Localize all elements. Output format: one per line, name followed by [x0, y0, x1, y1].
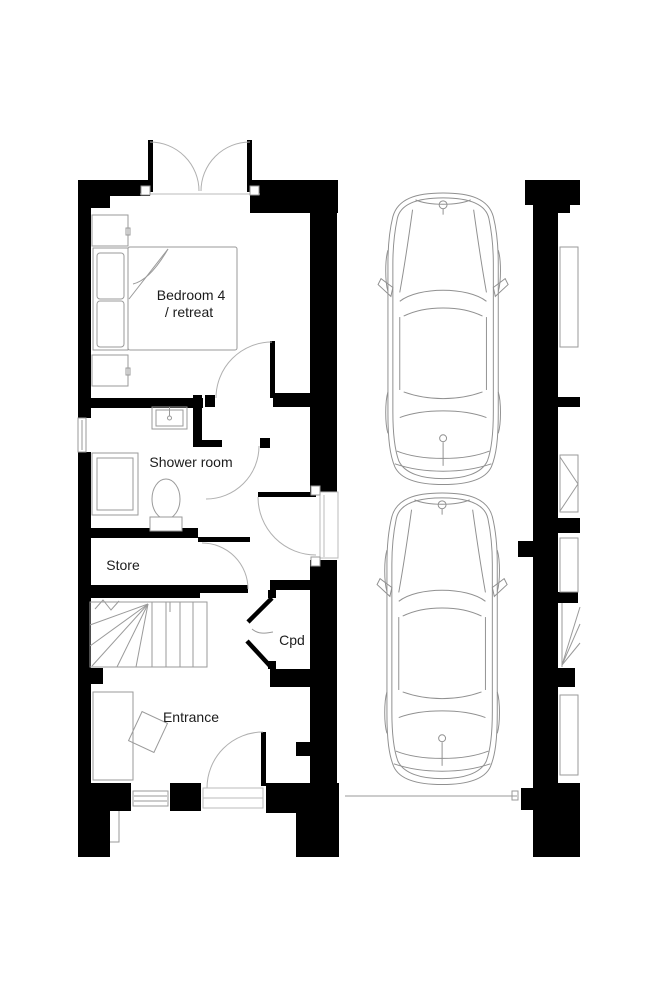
nightstand-top: [92, 215, 128, 246]
neighbor-wall-column: [533, 205, 558, 783]
shower-tray: [92, 453, 138, 515]
cpd-leader-line: [252, 629, 273, 633]
wall-sink-partition: [193, 395, 202, 445]
cpd-label: Cpd: [279, 632, 305, 648]
entrance-door-leaf: [261, 732, 266, 786]
french-door-jamb-left: [141, 186, 150, 195]
neighbor-window-box-3: [560, 695, 578, 775]
wall-left-upper: [78, 196, 91, 418]
french-door-jamb-right: [250, 186, 259, 195]
bed-fold-curve: [133, 249, 168, 284]
neighbor-stairs: [562, 603, 580, 667]
store-label: Store: [106, 557, 140, 573]
wall-right-stub: [296, 742, 311, 756]
sink-tap-head: [168, 416, 172, 420]
car-2: [377, 493, 507, 785]
shower-door-post: [260, 438, 270, 448]
bifold-leaf-upper: [248, 598, 272, 622]
main-unit-walls: [78, 180, 339, 857]
store-door-arc: [202, 543, 248, 589]
wall-store-bottom: [78, 585, 200, 598]
wall-left-lower: [78, 452, 91, 783]
entrance-door-arc: [207, 732, 263, 788]
wall-shower-stub: [193, 440, 222, 447]
cpd-top-stub: [270, 580, 312, 590]
bedroom-door-leaf: [270, 341, 275, 398]
shower-room-label: Shower room: [149, 454, 232, 470]
wall-top-left-notch: [91, 196, 110, 208]
wall-hall-low: [198, 537, 250, 542]
french-door-left-arc: [150, 142, 199, 191]
neighbor-window-box-1: [560, 247, 578, 347]
neighbor-unit: [518, 180, 580, 857]
wall-right-lower: [310, 560, 337, 783]
bedroom-door-jamb: [205, 395, 215, 407]
neighbor-top-cap: [525, 180, 580, 205]
porch-left-pier: [78, 811, 110, 857]
chair: [129, 712, 168, 753]
front-door-jamb-top: [311, 486, 320, 495]
wall-bottom-right: [266, 783, 339, 813]
porch-step-lines: [110, 811, 119, 842]
porch-window: [133, 791, 168, 806]
porch-right-pier: [296, 813, 339, 857]
neighbor-step: [558, 205, 570, 213]
wall-bottom-center-pier: [170, 783, 201, 811]
wall-bedroom-door-head: [273, 393, 310, 407]
toilet-bowl: [152, 479, 180, 519]
neighbor-bottom-block: [533, 783, 580, 857]
cupboard-bifold-doors: [247, 598, 273, 667]
shower-tray-inner: [97, 458, 133, 510]
front-door-leaf: [258, 492, 316, 497]
wall-right-upper: [310, 213, 337, 492]
desk: [93, 692, 133, 780]
bifold-leaf-lower: [247, 641, 271, 667]
wall-top-right: [250, 180, 338, 213]
french-door-right-leaf: [247, 140, 252, 192]
entrance-label: Entrance: [163, 709, 219, 725]
neighbor-x-box: [560, 455, 578, 512]
french-door-right-arc: [201, 142, 250, 191]
neighbor-left-stub-a: [518, 541, 533, 557]
store-door-leaf: [198, 585, 248, 593]
entrance-door: [203, 732, 266, 808]
nightstand-bottom: [92, 355, 128, 386]
cpd-jamb-top: [268, 590, 276, 598]
floor-plan-canvas: Bedroom 4 / retreat Shower room Store Cp…: [0, 0, 661, 1001]
neighbor-stub-2: [558, 518, 580, 533]
wall-bottom-left: [78, 783, 131, 811]
bedroom-label-line1: Bedroom 4: [157, 287, 226, 303]
front-door-jamb-bottom: [311, 557, 320, 566]
pillow-1: [97, 253, 124, 299]
neighbor-stub-1: [558, 397, 580, 407]
neighbor-block-4: [558, 668, 575, 687]
neighbor-window-box-2: [560, 538, 578, 592]
pillow-2: [97, 301, 124, 347]
bedroom-label-line2: / retreat: [165, 304, 213, 320]
wall-top-left: [78, 180, 150, 196]
room-labels: Bedroom 4 / retreat Shower room Store Cp…: [106, 287, 305, 725]
neighbor-stub-3: [558, 592, 578, 603]
front-door: [258, 486, 338, 566]
neighbor-left-stub-b: [521, 788, 533, 810]
stairs-pier: [78, 668, 103, 684]
store-door: [198, 543, 248, 593]
toilet-cistern: [150, 517, 182, 531]
french-door-left-leaf: [148, 140, 153, 192]
cpd-bottom-stub: [270, 669, 312, 687]
driveway: [345, 193, 518, 800]
front-door-arc: [258, 497, 316, 555]
front-door-threshold: [320, 492, 338, 558]
floor-plan: Bedroom 4 / retreat Shower room Store Cp…: [0, 0, 661, 1001]
stairs: [90, 600, 207, 667]
french-doors: [140, 140, 260, 195]
car-1: [378, 193, 508, 485]
